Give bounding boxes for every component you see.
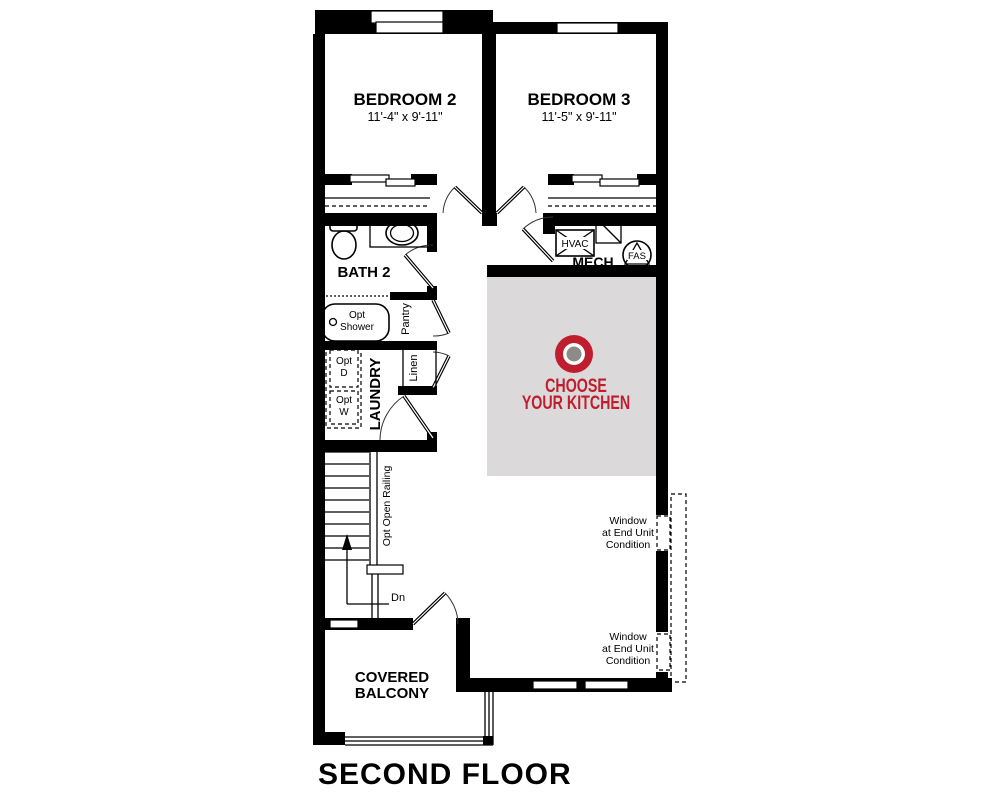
window-note2-line2: at End Unit: [602, 643, 654, 655]
opt-dryer-line1: Opt: [336, 356, 352, 367]
choose-kitchen-line2[interactable]: YOUR KITCHEN: [522, 392, 630, 413]
pantry-label: Pantry: [400, 303, 412, 335]
window-note1-line3: Condition: [606, 539, 651, 551]
fas-label: FAS: [628, 251, 646, 262]
opt-washer-line2: W: [339, 407, 349, 418]
window-note1-line2: at End Unit: [602, 527, 654, 539]
bedroom2-label: BEDROOM 2: [354, 90, 457, 109]
bedroom2-dims: 11'-4" x 9'-11": [367, 110, 442, 124]
opt-shower-line2: Shower: [340, 322, 375, 333]
page-title: SECOND FLOOR: [318, 758, 572, 791]
choose-kitchen-target-icon[interactable]: [555, 335, 593, 373]
window-note2-line3: Condition: [606, 655, 651, 667]
opt-open-railing-label: Opt Open Railing: [381, 466, 393, 547]
bedroom3-dims: 11'-5" x 9'-11": [541, 110, 616, 124]
linen-label: Linen: [408, 355, 420, 382]
mech-label: MECH: [572, 254, 613, 270]
laundry-label: LAUNDRY: [367, 358, 384, 431]
opt-shower-line1: Opt: [349, 310, 365, 321]
opt-dryer-line2: D: [340, 368, 347, 379]
bedroom3-label: BEDROOM 3: [528, 90, 631, 109]
window-note2-line1: Window: [609, 631, 647, 643]
down-label: Dn: [391, 592, 405, 604]
bath2-label: BATH 2: [337, 264, 390, 281]
floor-plan-page: CHOOSE YOUR KITCHEN BEDROOM 2 11'-4" x 9…: [0, 0, 1000, 800]
balcony-line2: BALCONY: [355, 685, 429, 702]
balcony-line1: COVERED: [355, 669, 429, 686]
opt-washer-line1: Opt: [336, 395, 352, 406]
floor-plan-drawing: CHOOSE YOUR KITCHEN BEDROOM 2 11'-4" x 9…: [0, 0, 1000, 800]
window-note1-line1: Window: [609, 515, 647, 527]
hvac-label: HVAC: [561, 239, 588, 250]
